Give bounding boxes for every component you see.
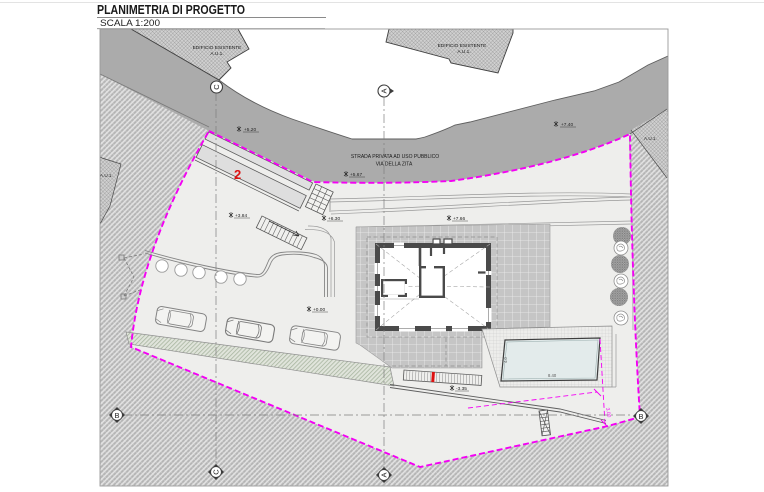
svg-text:4.0: 4.0: [503, 357, 508, 363]
svg-text:2: 2: [234, 167, 241, 182]
svg-text:A.U.1.: A.U.1.: [644, 136, 657, 141]
svg-text:A: A: [380, 472, 389, 477]
svg-text:EDIFICIO ESISTENTE: EDIFICIO ESISTENTE: [438, 43, 487, 49]
svg-text:B: B: [114, 411, 119, 420]
svg-text:B: B: [638, 412, 643, 421]
svg-text:EDIFICIO ESISTENTE: EDIFICIO ESISTENTE: [193, 45, 242, 51]
svg-text:A.U.1.: A.U.1.: [457, 49, 470, 55]
svg-text:A.U.1.: A.U.1.: [100, 173, 113, 178]
svg-text:VIA DELLA ZITA: VIA DELLA ZITA: [376, 162, 413, 168]
svg-text:PLANIMETRIA DI PROGETTO: PLANIMETRIA DI PROGETTO: [97, 3, 245, 17]
svg-text:SCALA 1:200: SCALA 1:200: [100, 18, 160, 29]
svg-text:8.40: 8.40: [548, 373, 557, 378]
svg-text:STRADA PRIVATA AD USO PUBBLICO: STRADA PRIVATA AD USO PUBBLICO: [351, 154, 439, 160]
svg-text:A: A: [380, 88, 389, 93]
svg-text:C: C: [212, 84, 221, 90]
svg-text:C: C: [212, 469, 221, 475]
svg-text:A.U.1.: A.U.1.: [210, 51, 223, 57]
